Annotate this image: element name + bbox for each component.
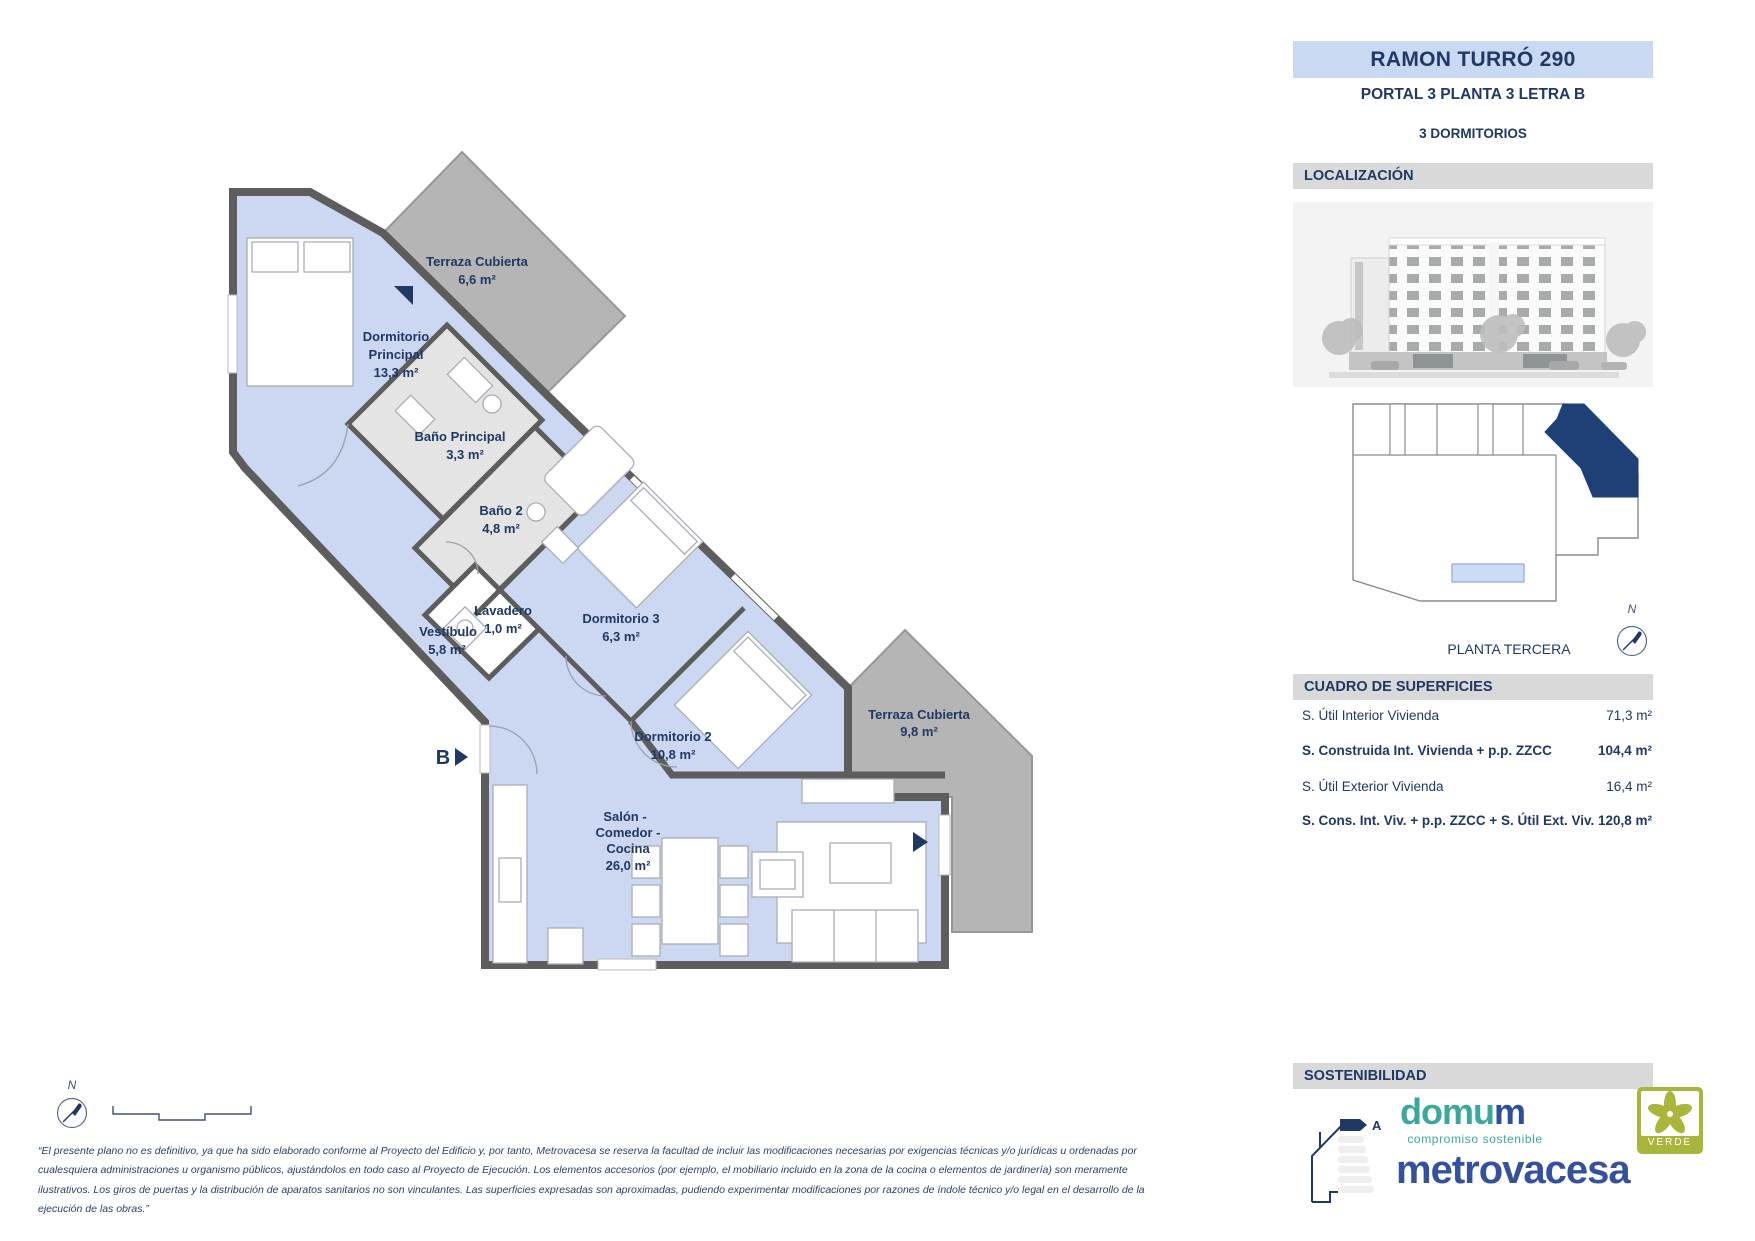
window-left <box>228 295 237 373</box>
unit-letter: B <box>436 747 450 769</box>
building-render <box>1293 202 1653 387</box>
svg-text:3,3 m²: 3,3 m² <box>446 447 484 462</box>
domum-logo-text: domu <box>1400 1091 1494 1132</box>
surface-value: 104,4 m² <box>1598 743 1652 758</box>
svg-text:Dormitorio 3: Dormitorio 3 <box>582 611 659 626</box>
floor-plan: B Terraza Cubierta 6,6 m² Dormitorio Pri… <box>0 0 1160 1010</box>
energy-rating-house-icon: A <box>1300 1104 1386 1206</box>
svg-text:13,3 m²: 13,3 m² <box>374 365 419 380</box>
svg-text:26,0 m²: 26,0 m² <box>606 858 651 873</box>
compass-icon: N <box>1612 600 1654 658</box>
svg-text:Dormitorio: Dormitorio <box>363 329 430 344</box>
site-plan-pool <box>1452 564 1524 582</box>
svg-text:N: N <box>68 1078 77 1092</box>
window-salon-south <box>598 959 656 970</box>
page-title: RAMON TURRÓ 290 <box>1293 41 1653 78</box>
svg-text:Terraza Cubierta: Terraza Cubierta <box>426 254 528 269</box>
surface-row: S. Útil Interior Vivienda 71,3 m² <box>1302 708 1652 723</box>
svg-text:10,8 m²: 10,8 m² <box>651 747 696 762</box>
surface-label: S. Útil Interior Vivienda <box>1302 708 1439 723</box>
bedroom-count: 3 DORMITORIOS <box>1293 126 1653 141</box>
unit-arrow-icon <box>455 748 468 766</box>
svg-text:5,8 m²: 5,8 m² <box>428 642 466 657</box>
surface-value: 16,4 m² <box>1606 779 1652 794</box>
svg-text:4,8 m²: 4,8 m² <box>482 521 520 536</box>
surface-row: S. Útil Exterior Vivienda 16,4 m² <box>1302 779 1652 794</box>
verde-leaf-icon <box>1641 1091 1699 1136</box>
verde-label: VERDE <box>1637 1137 1703 1148</box>
svg-text:Comedor -: Comedor - <box>596 825 661 840</box>
svg-text:Terraza Cubierta: Terraza Cubierta <box>868 707 970 722</box>
svg-text:Principal: Principal <box>369 347 424 362</box>
section-cuadro-superficies: CUADRO DE SUPERFICIES <box>1293 674 1653 700</box>
svg-text:Baño Principal: Baño Principal <box>414 429 505 444</box>
portal-floor-letter: PORTAL 3 PLANTA 3 LETRA B <box>1293 86 1653 104</box>
surface-label: S. Cons. Int. Viv. + p.p. ZZCC + S. Útil… <box>1302 813 1594 828</box>
plan-sheet: B Terraza Cubierta 6,6 m² Dormitorio Pri… <box>0 0 1755 1241</box>
svg-text:A: A <box>1372 1118 1382 1133</box>
svg-text:9,8 m²: 9,8 m² <box>900 724 938 739</box>
svg-text:Dormitorio 2: Dormitorio 2 <box>634 729 711 744</box>
svg-text:6,6 m²: 6,6 m² <box>458 272 496 287</box>
disclaimer-text: “El presente plano no es definitivo, ya … <box>38 1142 1165 1220</box>
surface-label: S. Construida Int. Vivienda + p.p. ZZCC <box>1302 743 1552 758</box>
compass-icon: N <box>50 1075 96 1133</box>
floor-name: PLANTA TERCERA <box>1399 641 1619 657</box>
svg-text:Cocina: Cocina <box>606 841 650 856</box>
svg-text:Lavadero: Lavadero <box>474 603 532 618</box>
surface-value: 120,8 m² <box>1598 813 1652 828</box>
surface-row: S. Cons. Int. Viv. + p.p. ZZCC + S. Útil… <box>1302 813 1652 828</box>
svg-text:Baño 2: Baño 2 <box>479 503 522 518</box>
svg-text:N: N <box>1628 602 1637 616</box>
svg-text:Vestíbulo: Vestíbulo <box>419 624 477 639</box>
metrovacesa-logo: metrovacesa <box>1396 1150 1630 1190</box>
svg-text:6,3 m²: 6,3 m² <box>602 629 640 644</box>
domum-logo: domum compromiso sostenible <box>1400 1094 1550 1146</box>
window-salon-east <box>939 815 950 875</box>
section-sostenibilidad: SOSTENIBILIDAD <box>1293 1063 1653 1089</box>
verde-certificate-badge: VERDE <box>1637 1087 1703 1154</box>
entry-door-leaf <box>480 725 490 773</box>
site-key-plan <box>1340 395 1670 610</box>
domum-tagline: compromiso sostenible <box>1400 1132 1550 1146</box>
surface-row: S. Construida Int. Vivienda + p.p. ZZCC … <box>1302 743 1652 758</box>
surface-value: 71,3 m² <box>1606 708 1652 723</box>
svg-text:1,0 m²: 1,0 m² <box>484 621 522 636</box>
scale-bar <box>110 1098 262 1124</box>
section-localizacion: LOCALIZACIÓN <box>1293 163 1653 189</box>
svg-text:Salón -: Salón - <box>603 809 646 824</box>
surface-label: S. Útil Exterior Vivienda <box>1302 779 1444 794</box>
